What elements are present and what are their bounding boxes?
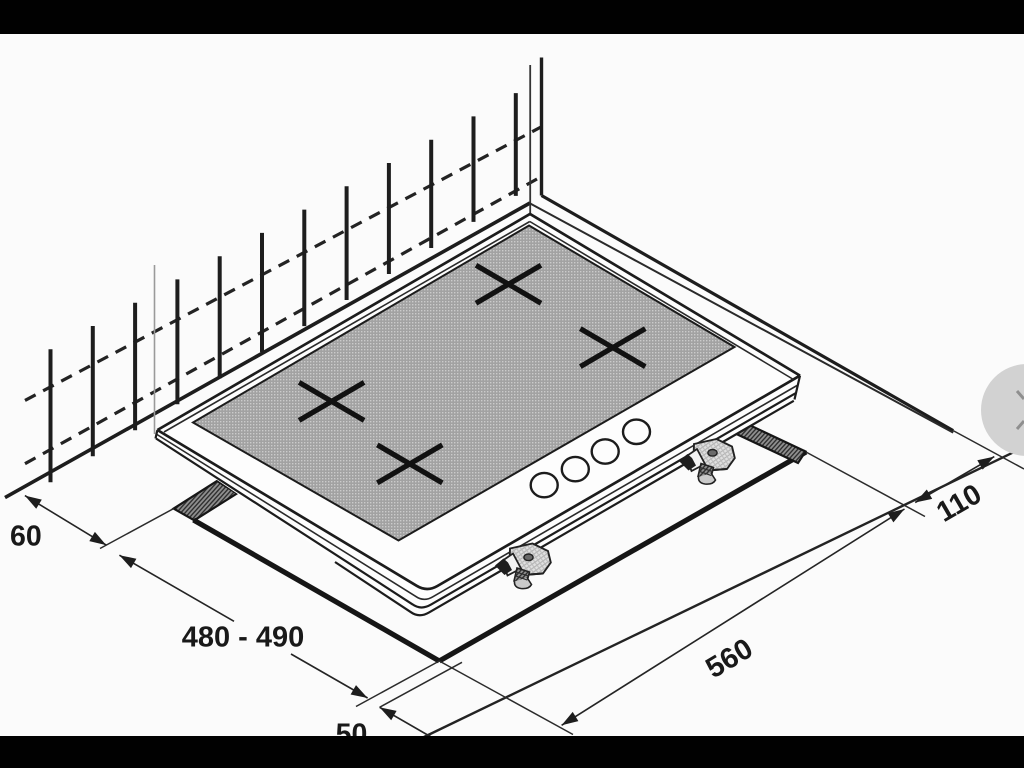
svg-text:60: 60: [10, 521, 42, 553]
svg-text:480 - 490: 480 - 490: [182, 622, 305, 654]
